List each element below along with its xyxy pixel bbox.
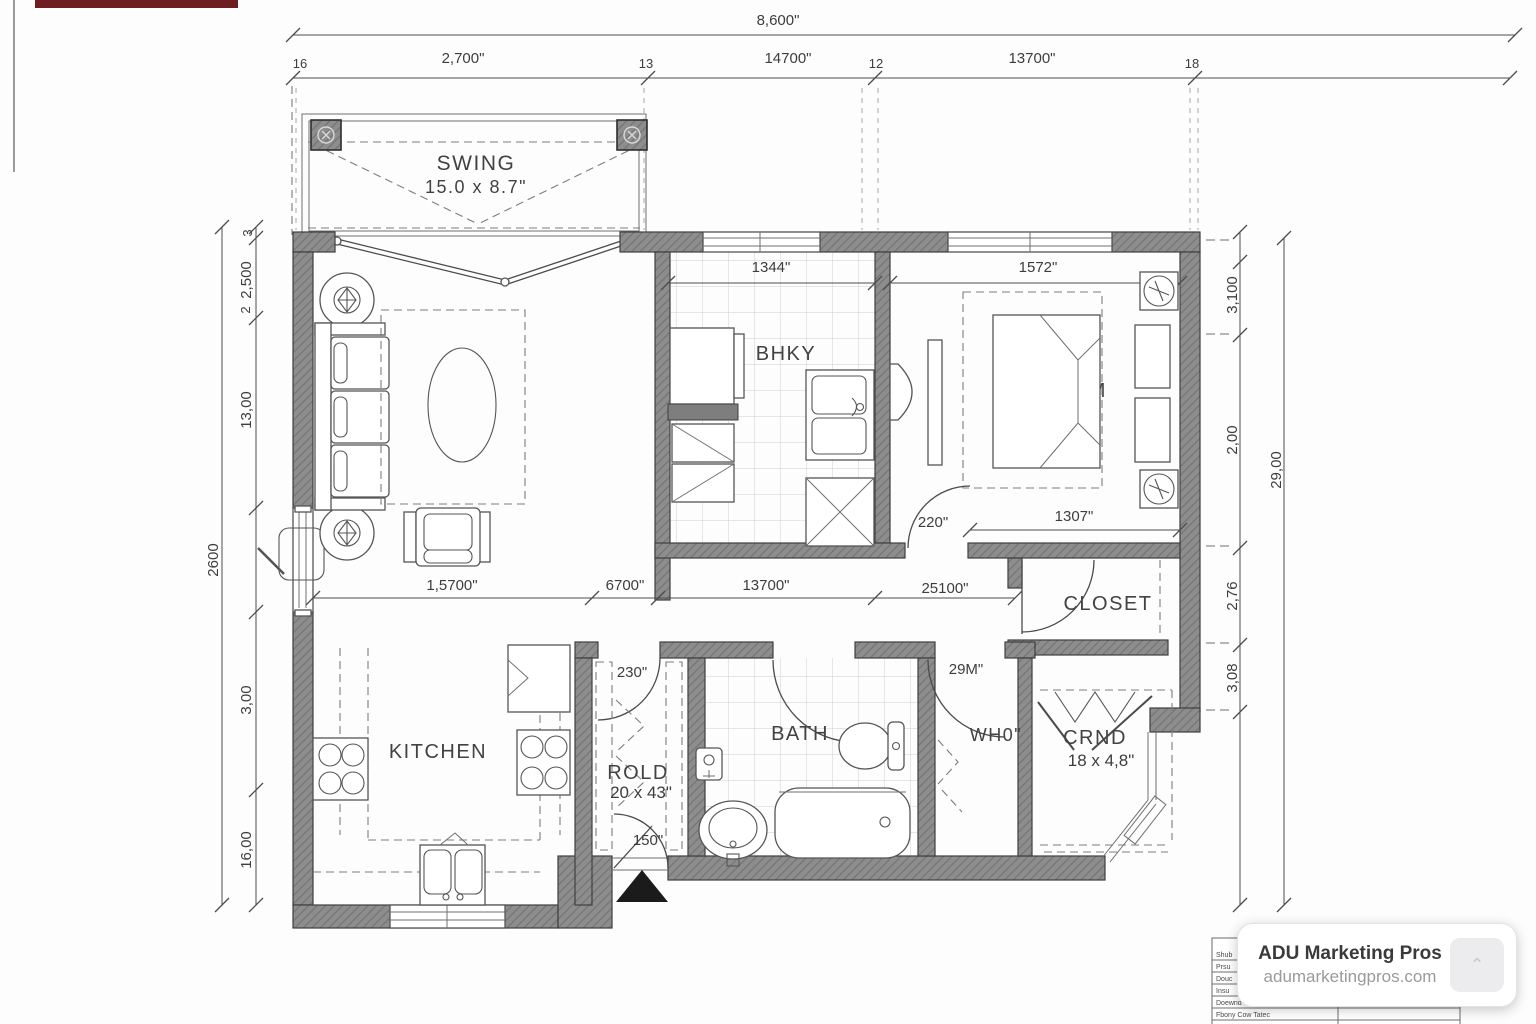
corner-sink-icon (696, 748, 722, 780)
dim-label: 3 (240, 229, 255, 236)
wall-closet-nib (1008, 558, 1022, 588)
dim-label: 1572" (1019, 259, 1058, 276)
titleblock-row: Prsu (1216, 964, 1231, 971)
dimension-right: 3,100 2,00 2,76 3,08 29,00 (1206, 225, 1291, 912)
room-size-label: 18 x 4,8" (1068, 751, 1135, 770)
washer (806, 478, 874, 546)
entry-arrow (616, 870, 668, 902)
bedroom: 1572" BEDROOM 1307" (883, 259, 1187, 548)
chevron-up-icon: ⌃ (1469, 955, 1484, 976)
door-label: 29M" (949, 661, 984, 678)
front-door-threshold (612, 858, 668, 870)
dim-label: 2,500 (238, 261, 255, 299)
wall-hall-south (855, 642, 935, 658)
branding-text: ADU Marketing Pros adumarketingpros.com (1250, 942, 1450, 989)
dim-label: 1307" (1055, 508, 1094, 525)
speaker-icon (1140, 272, 1178, 310)
closet: CLOSET (1022, 560, 1160, 638)
room-label: CRND (1063, 727, 1127, 749)
window (948, 232, 1112, 252)
branding-card[interactable]: ADU Marketing Pros adumarketingpros.com … (1237, 923, 1517, 1007)
dim-label: 2 (238, 306, 253, 313)
laundry-sink (806, 370, 874, 460)
living-room (315, 273, 525, 566)
dim-label: 18 (1185, 56, 1199, 71)
wall-bedroom-south (968, 543, 1180, 558)
branding-url: adumarketingpros.com (1250, 966, 1450, 988)
room-label: CLOSET (1063, 593, 1152, 615)
dim-label: 2,76 (1224, 581, 1241, 610)
coffee-table (428, 348, 496, 462)
ceiling-fan-icon (320, 273, 374, 327)
cabinet (670, 328, 734, 404)
dimension-left: 3 2,500 2 13,00 3,00 16,00 2600 (205, 220, 263, 912)
dim-label: 13700" (1008, 50, 1055, 67)
room-label: SWING (437, 152, 516, 175)
room-size-label: 20 x 43" (610, 783, 672, 802)
toilet-icon (839, 722, 904, 770)
wall-bath-utility (918, 658, 935, 856)
closet-door-arc (1022, 560, 1094, 634)
wall-right-step (1150, 708, 1200, 732)
dim-label: 8,600" (757, 12, 800, 29)
floorplan-page: 8,600" 16 2,700" 13 14700" 12 13700" 18 … (0, 0, 1536, 1024)
folding-door (333, 237, 628, 286)
room-label: BHKY (756, 343, 816, 365)
dim-label: 6700" (606, 577, 645, 594)
titleblock-row: Fbony Cow Tatec (1216, 1012, 1270, 1019)
dim-label: 2,00 (1224, 425, 1241, 454)
dim-label: 14700" (764, 50, 811, 67)
armchair (404, 508, 490, 566)
wall-top (1112, 232, 1200, 252)
kitchen: KITCHEN (313, 645, 570, 905)
room-label: ROLD (607, 762, 669, 784)
dim-label: 16,00 (238, 831, 255, 869)
wall-kitchen-pantry (575, 658, 592, 905)
porch-swing: SWING 15.0 x 8.7" (292, 86, 647, 286)
bed (993, 315, 1100, 468)
wall-right (1180, 252, 1200, 712)
dim-label: 13 (639, 56, 653, 71)
cooktop (313, 738, 368, 800)
bathtub-icon (775, 788, 910, 858)
floorplan-drawing: 8,600" 16 2,700" 13 14700" 12 13700" 18 … (0, 0, 1536, 1024)
titleblock-row: Insu (1216, 988, 1229, 995)
dim-label: 3,00 (238, 685, 255, 714)
fridge (508, 645, 570, 712)
wall-hall-south (660, 642, 773, 658)
dim-label: 13,00 (238, 391, 255, 429)
console-table (890, 364, 912, 420)
dim-label: 2,700" (442, 50, 485, 67)
room-label: WH0" (970, 725, 1022, 745)
kitchen-sink (420, 833, 485, 905)
wall-top (820, 232, 948, 252)
dim-label: 3,100 (1224, 276, 1241, 314)
pantry: 230" ROLD 20 x 43" 150" (596, 658, 682, 868)
wall-hall-south (1005, 642, 1035, 658)
cooktop (517, 730, 570, 795)
branding-logo: ⌃ (1450, 938, 1504, 992)
counter-nib (668, 404, 738, 420)
rug (381, 310, 525, 504)
dim-label: 29,00 (1268, 451, 1285, 489)
door-label: 220" (918, 514, 948, 531)
window-door-left (258, 506, 324, 616)
room-label: KITCHEN (389, 741, 487, 763)
utility-room: 29M" WH0" (928, 660, 1022, 812)
hanger-rod (1055, 692, 1135, 722)
wall-utility-wardrobe (1018, 658, 1032, 856)
titleblock-row: Shub (1216, 952, 1232, 959)
sofa (315, 323, 389, 510)
wall-left (293, 612, 313, 905)
dim-label: 13700" (742, 577, 789, 594)
door-label: 150" (633, 832, 663, 849)
nightstand (1135, 398, 1170, 462)
room-size-label: 15.0 x 8.7" (425, 177, 527, 197)
dim-label: 1,5700" (426, 577, 477, 594)
window (703, 232, 820, 252)
dim-label: 12 (869, 56, 883, 71)
wall-left (293, 252, 313, 508)
wall-top (293, 232, 335, 252)
speaker-icon (1140, 470, 1178, 508)
dim-label: 25100" (921, 580, 968, 597)
dim-label: 3,08 (1224, 663, 1241, 692)
titleblock-row: Douc (1216, 976, 1233, 983)
wall-hall-south (575, 642, 598, 658)
window (390, 905, 505, 928)
wall-entry-bedroom (875, 252, 890, 543)
door-label: 230" (617, 664, 647, 681)
wall-top (620, 232, 703, 252)
dim-label: 16 (293, 56, 307, 71)
ceiling-fan-icon (320, 506, 374, 560)
branding-title: ADU Marketing Pros (1250, 942, 1450, 967)
dim-label: 1344" (752, 259, 791, 276)
dim-label: 2600 (205, 543, 222, 576)
dresser (928, 340, 942, 465)
nightstand (1135, 325, 1170, 388)
